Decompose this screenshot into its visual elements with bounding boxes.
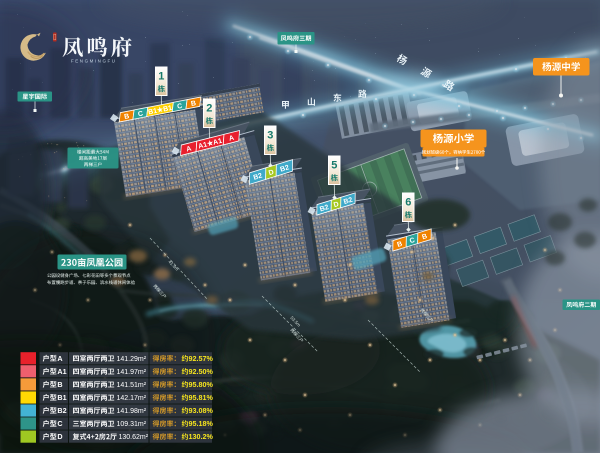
svg-text:93.08%: 93.08% xyxy=(189,406,214,415)
svg-text:3: 3 xyxy=(267,130,273,142)
svg-text:142.17m²: 142.17m² xyxy=(117,395,147,402)
svg-text:130.62m²: 130.62m² xyxy=(119,434,149,441)
svg-text:141.98m²: 141.98m² xyxy=(117,408,147,415)
svg-text:109.31m²: 109.31m² xyxy=(117,421,147,428)
svg-text:92.50%: 92.50% xyxy=(189,367,214,376)
svg-text:B: B xyxy=(57,380,62,389)
svg-text:141.51m²: 141.51m² xyxy=(117,382,147,389)
svg-text:B2: B2 xyxy=(57,406,66,415)
svg-text:FENGMINGFU: FENGMINGFU xyxy=(71,59,117,64)
svg-text:141.97m²: 141.97m² xyxy=(117,369,147,376)
svg-text:6: 6 xyxy=(405,197,411,209)
svg-text:5: 5 xyxy=(331,160,337,172)
svg-text:130.2%: 130.2% xyxy=(189,432,214,441)
svg-text:A1: A1 xyxy=(57,367,66,376)
svg-text:92.57%: 92.57% xyxy=(189,354,214,363)
svg-text:141.29m²: 141.29m² xyxy=(117,356,147,363)
svg-text:95.80%: 95.80% xyxy=(189,380,214,389)
svg-text:B1: B1 xyxy=(57,393,66,402)
svg-text:C: C xyxy=(57,419,62,428)
svg-text:D: D xyxy=(57,432,62,441)
svg-text:A: A xyxy=(57,354,62,363)
svg-text:95.18%: 95.18% xyxy=(189,419,214,428)
svg-text:2: 2 xyxy=(206,103,212,115)
svg-text:1: 1 xyxy=(158,71,164,83)
svg-text:95.81%: 95.81% xyxy=(189,393,214,402)
